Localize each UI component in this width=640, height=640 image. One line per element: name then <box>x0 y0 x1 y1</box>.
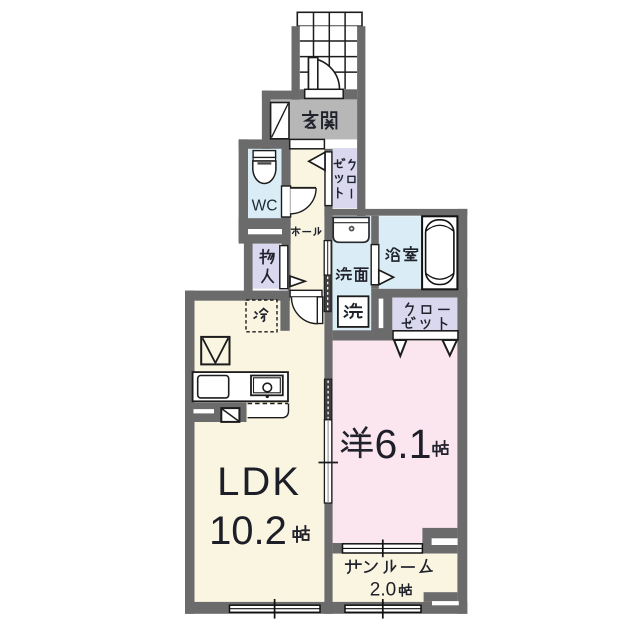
svg-text:6.1: 6.1 <box>375 421 432 467</box>
svg-text:10.2: 10.2 <box>209 509 287 553</box>
svg-text:2.0: 2.0 <box>370 580 396 601</box>
svg-text:WC: WC <box>252 197 278 214</box>
svg-text:LDK: LDK <box>217 460 301 504</box>
